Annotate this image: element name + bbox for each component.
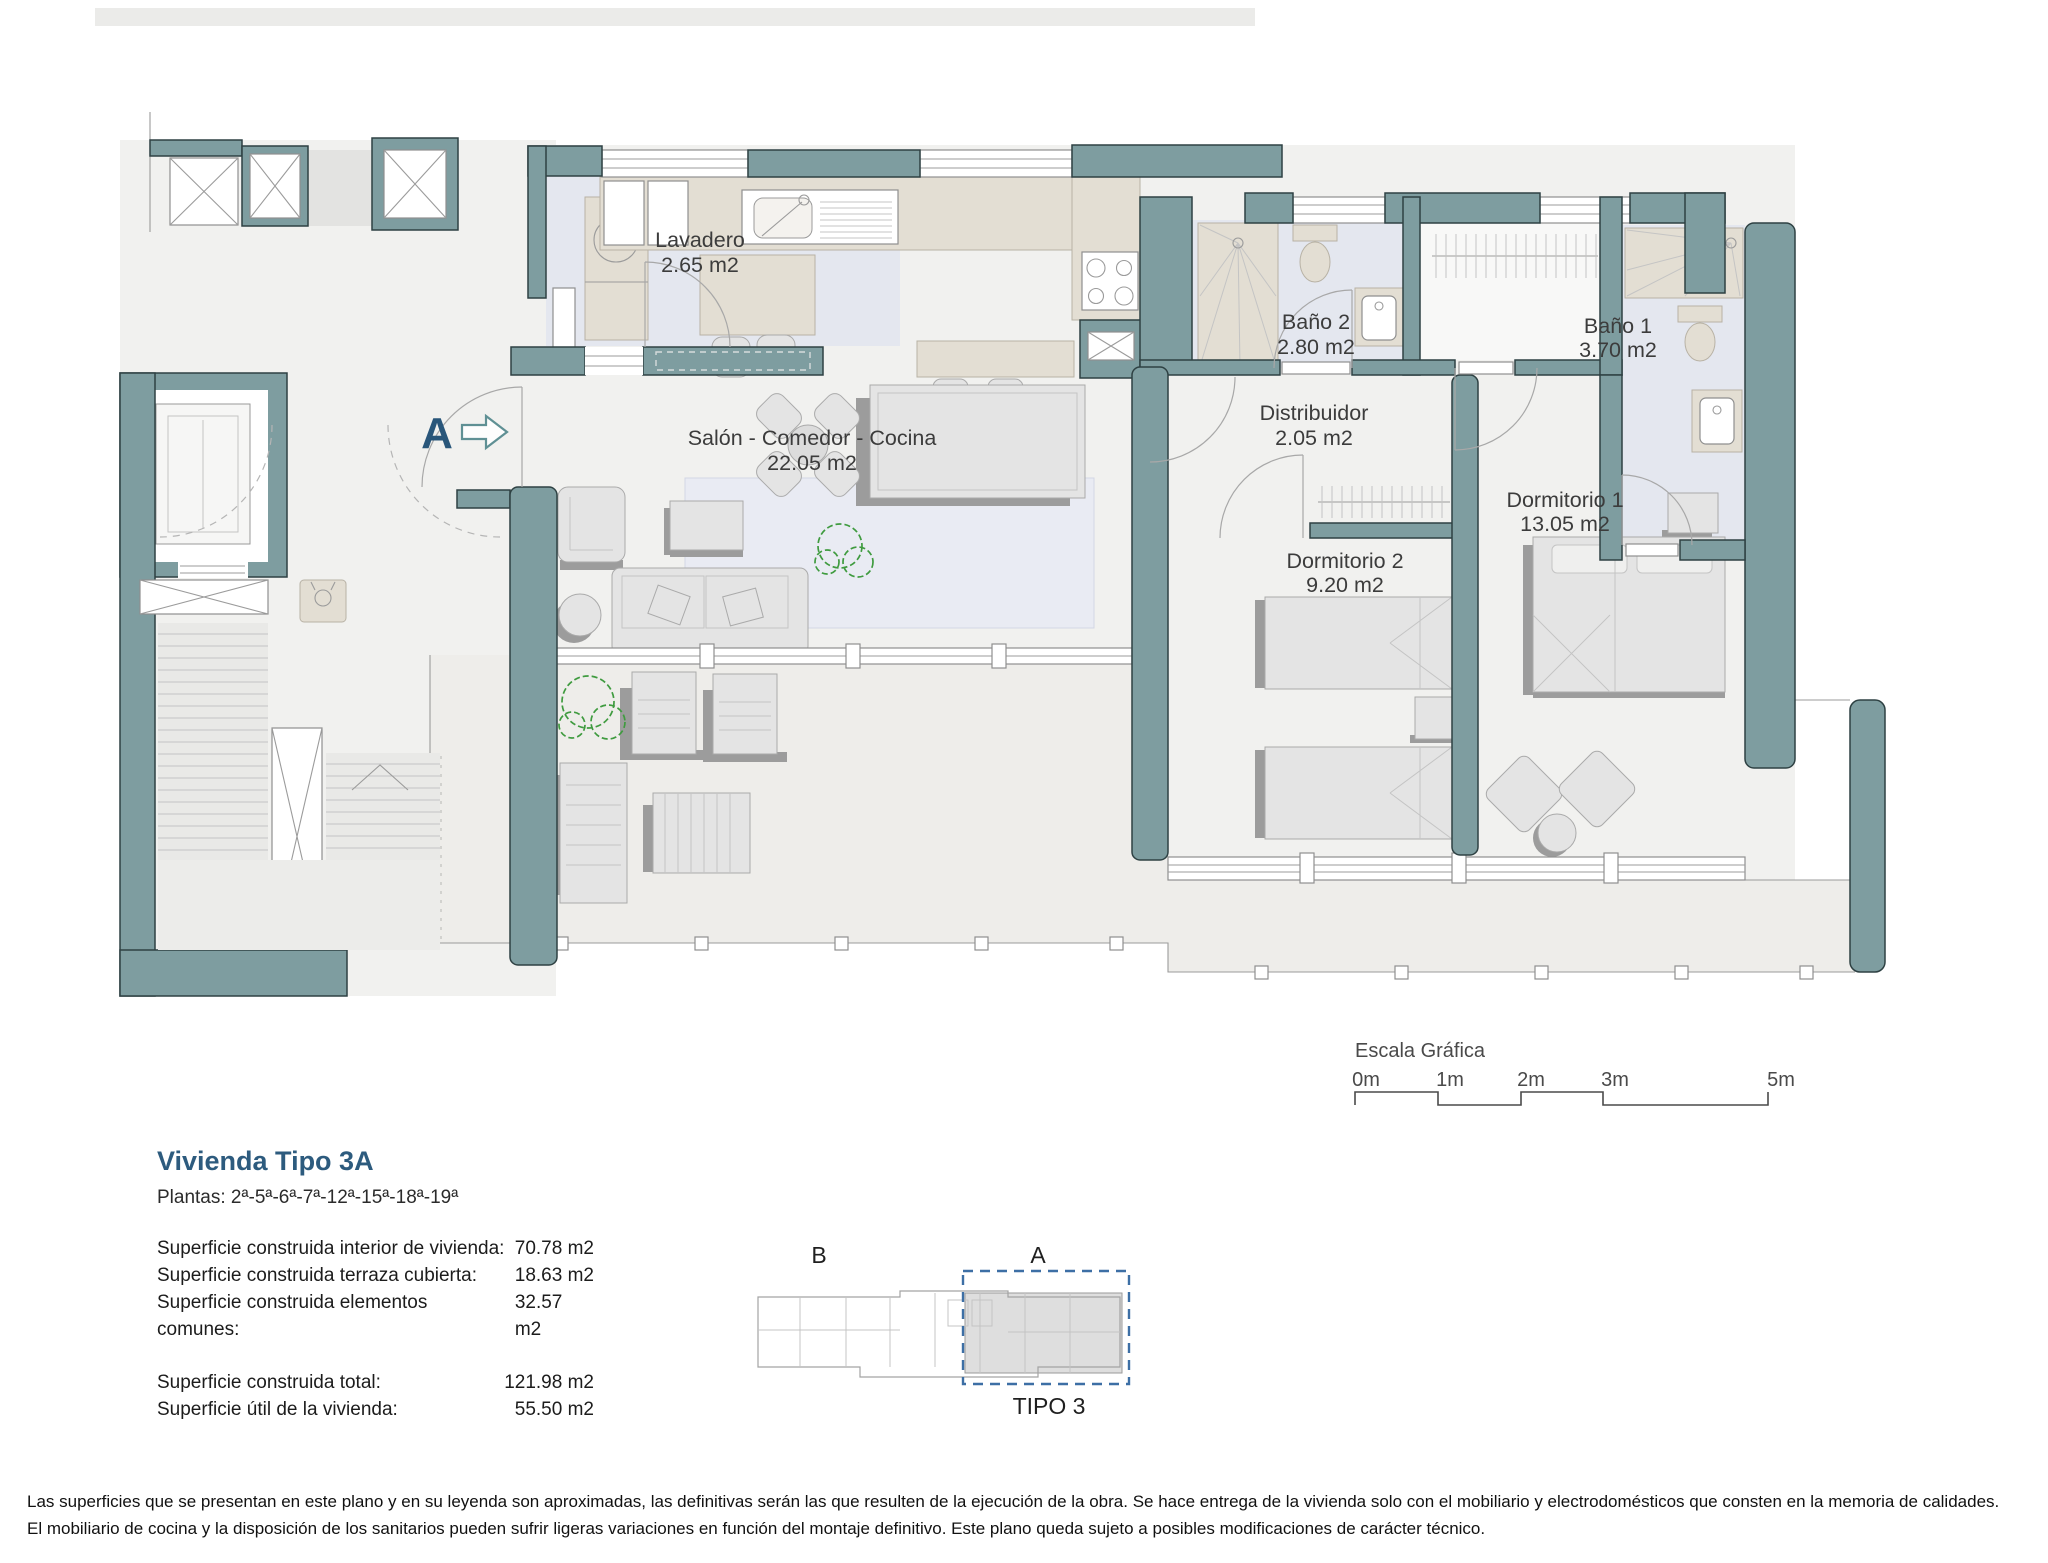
floor-plan-sheet: Lavadero 2.65 m2 Salón - Comedor - Cocin… (0, 0, 2048, 1563)
room-area-dormitorio2: 9.20 m2 (1306, 573, 1384, 597)
room-label-dormitorio1: Dormitorio 1 (1506, 488, 1623, 512)
surface-row: Superficie construida terraza cubierta: … (157, 1262, 594, 1289)
room-label-bano2: Baño 2 (1282, 310, 1350, 334)
room-label-bano1: Baño 1 (1584, 314, 1652, 338)
disclaimer-line-1: Las superficies que se presentan en este… (27, 1489, 1999, 1516)
disclaimer-line-2: El mobiliario de cocina y la disposición… (27, 1516, 1999, 1543)
scale-tick-3m: 3m (1601, 1069, 1629, 1091)
scale-bar-rule (1355, 1092, 1768, 1105)
room-area-dormitorio1: 13.05 m2 (1520, 512, 1610, 536)
keyplan-block-b: B (811, 1242, 826, 1268)
room-label-dormitorio2: Dormitorio 2 (1286, 549, 1403, 573)
sink (742, 190, 898, 244)
room-label-lavadero: Lavadero (655, 228, 745, 252)
surface-label: Superficie útil de la vivienda: (157, 1396, 398, 1423)
surface-label: Superficie construida total: (157, 1369, 381, 1396)
legend-block: Vivienda Tipo 3A Plantas: 2ª-5ª-6ª-7ª-12… (157, 1146, 594, 1423)
scale-bar: Escala Gráfica 0m 1m 2m 3m 5m (1352, 1040, 1795, 1105)
surface-row: Superficie construida total: 121.98 m2 (157, 1369, 594, 1396)
scale-tick-1m: 1m (1436, 1069, 1464, 1091)
surface-label: Superficie construida elementos comunes: (157, 1289, 515, 1343)
floors-list: Plantas: 2ª-5ª-6ª-7ª-12ª-15ª-18ª-19ª (157, 1185, 594, 1211)
surface-value: 121.98 m2 (504, 1369, 594, 1396)
cooktop (1082, 252, 1138, 310)
surface-rows: Superficie construida interior de vivien… (157, 1235, 594, 1343)
room-area-bano1: 3.70 m2 (1579, 338, 1657, 362)
surface-value: 70.78 m2 (515, 1235, 594, 1262)
surface-value: 32.57 m2 (515, 1289, 594, 1343)
surface-row: Superficie construida elementos comunes:… (157, 1289, 594, 1343)
page-title: Vivienda Tipo 3A (157, 1146, 594, 1177)
surface-row: Superficie útil de la vivienda: 55.50 m2 (157, 1396, 594, 1423)
surface-value: 55.50 m2 (515, 1396, 594, 1423)
surface-value: 18.63 m2 (515, 1262, 594, 1289)
surface-row: Superficie construida interior de vivien… (157, 1235, 594, 1262)
surface-label: Superficie construida terraza cubierta: (157, 1262, 477, 1289)
room-area-lavadero: 2.65 m2 (661, 253, 739, 277)
scale-tick-2m: 2m (1517, 1069, 1545, 1091)
keyplan-block-a: A (1030, 1242, 1046, 1268)
room-area-distribuidor: 2.05 m2 (1275, 426, 1353, 450)
room-label-salon: Salón - Comedor - Cocina (688, 426, 937, 450)
key-plan: B A TIPO 3 (758, 1242, 1129, 1419)
surface-label: Superficie construida interior de vivien… (157, 1235, 504, 1262)
scale-tick-5m: 5m (1767, 1069, 1795, 1091)
room-label-distribuidor: Distribuidor (1260, 401, 1369, 425)
room-area-bano2: 2.80 m2 (1277, 335, 1355, 359)
section-marker-letter: A (421, 409, 453, 458)
scale-tick-0m: 0m (1352, 1069, 1380, 1091)
scale-bar-title: Escala Gráfica (1355, 1040, 1486, 1062)
disclaimer: Las superficies que se presentan en este… (27, 1489, 1999, 1542)
room-area-salon: 22.05 m2 (767, 451, 857, 475)
surface-totals: Superficie construida total: 121.98 m2 S… (157, 1369, 594, 1423)
keyplan-caption: TIPO 3 (1013, 1393, 1086, 1419)
